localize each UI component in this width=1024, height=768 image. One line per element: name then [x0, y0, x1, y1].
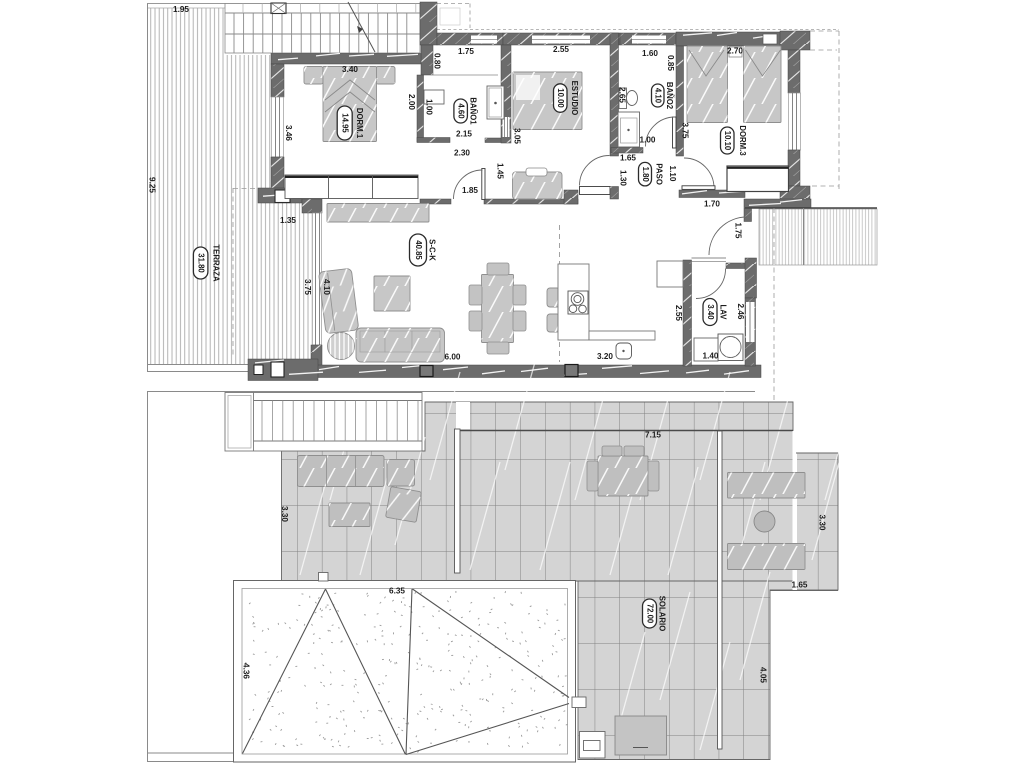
svg-text:2.70: 2.70 — [727, 47, 743, 56]
svg-text:TERRAZA: TERRAZA — [211, 244, 220, 282]
svg-text:72.00: 72.00 — [645, 604, 654, 624]
svg-text:3.20: 3.20 — [597, 352, 613, 361]
svg-text:1.45: 1.45 — [495, 163, 504, 179]
svg-text:3.30: 3.30 — [817, 515, 826, 531]
svg-text:LAV: LAV — [718, 304, 727, 320]
svg-text:3.05: 3.05 — [512, 128, 521, 144]
svg-text:ESTUDIO: ESTUDIO — [570, 81, 579, 116]
svg-text:2.55: 2.55 — [674, 305, 683, 321]
svg-text:2.30: 2.30 — [454, 149, 470, 158]
svg-text:0.85: 0.85 — [666, 55, 675, 71]
svg-text:1.95: 1.95 — [173, 5, 189, 14]
svg-text:1.65: 1.65 — [620, 154, 636, 163]
svg-text:40.85: 40.85 — [414, 240, 423, 260]
svg-text:4.10: 4.10 — [654, 88, 663, 104]
svg-text:1.75: 1.75 — [458, 47, 474, 56]
svg-text:31.80: 31.80 — [197, 253, 206, 273]
svg-text:2.55: 2.55 — [553, 45, 569, 54]
svg-text:2.00: 2.00 — [407, 94, 416, 110]
svg-text:3.40: 3.40 — [342, 65, 358, 74]
svg-text:SOLARIO: SOLARIO — [657, 596, 666, 632]
svg-text:3.75: 3.75 — [303, 279, 312, 295]
svg-text:7.15: 7.15 — [645, 431, 661, 440]
svg-text:1.35: 1.35 — [280, 216, 296, 225]
svg-text:1.00: 1.00 — [640, 136, 656, 145]
svg-text:2.65: 2.65 — [617, 87, 626, 103]
svg-text:10.10: 10.10 — [723, 131, 732, 151]
svg-text:1.40: 1.40 — [703, 352, 719, 361]
svg-text:1.85: 1.85 — [462, 186, 478, 195]
svg-text:1.80: 1.80 — [641, 167, 650, 183]
svg-text:6.00: 6.00 — [445, 353, 461, 362]
svg-text:1.70: 1.70 — [704, 200, 720, 209]
svg-text:1.65: 1.65 — [792, 581, 808, 590]
svg-text:1.60: 1.60 — [642, 49, 658, 58]
svg-text:14.95: 14.95 — [341, 113, 350, 133]
svg-text:4.36: 4.36 — [241, 663, 250, 679]
svg-text:4.05: 4.05 — [758, 667, 767, 683]
svg-text:S-C-K: S-C-K — [427, 239, 436, 261]
svg-text:DORM.3: DORM.3 — [738, 125, 747, 156]
svg-text:DORM.1: DORM.1 — [355, 108, 364, 139]
svg-text:1.10: 1.10 — [668, 166, 677, 182]
svg-text:3.75: 3.75 — [680, 123, 689, 139]
svg-text:4.60: 4.60 — [457, 103, 466, 119]
svg-text:9.25: 9.25 — [147, 177, 156, 193]
svg-text:PASO: PASO — [654, 163, 663, 185]
svg-text:2.15: 2.15 — [456, 130, 472, 139]
svg-text:1.30: 1.30 — [618, 170, 627, 186]
svg-text:10.00: 10.00 — [556, 88, 565, 108]
svg-text:3.30: 3.30 — [280, 506, 289, 522]
svg-text:3.40: 3.40 — [706, 304, 715, 320]
svg-text:1.00: 1.00 — [424, 99, 433, 115]
svg-text:BAÑO1: BAÑO1 — [468, 97, 477, 125]
svg-text:3.46: 3.46 — [284, 125, 293, 141]
svg-text:4.10: 4.10 — [322, 279, 331, 295]
svg-text:BAÑO2: BAÑO2 — [665, 82, 674, 110]
svg-text:2.46: 2.46 — [736, 304, 745, 320]
svg-text:6.35: 6.35 — [389, 587, 405, 596]
svg-text:0.80: 0.80 — [432, 53, 441, 69]
svg-text:1.75: 1.75 — [733, 223, 742, 239]
